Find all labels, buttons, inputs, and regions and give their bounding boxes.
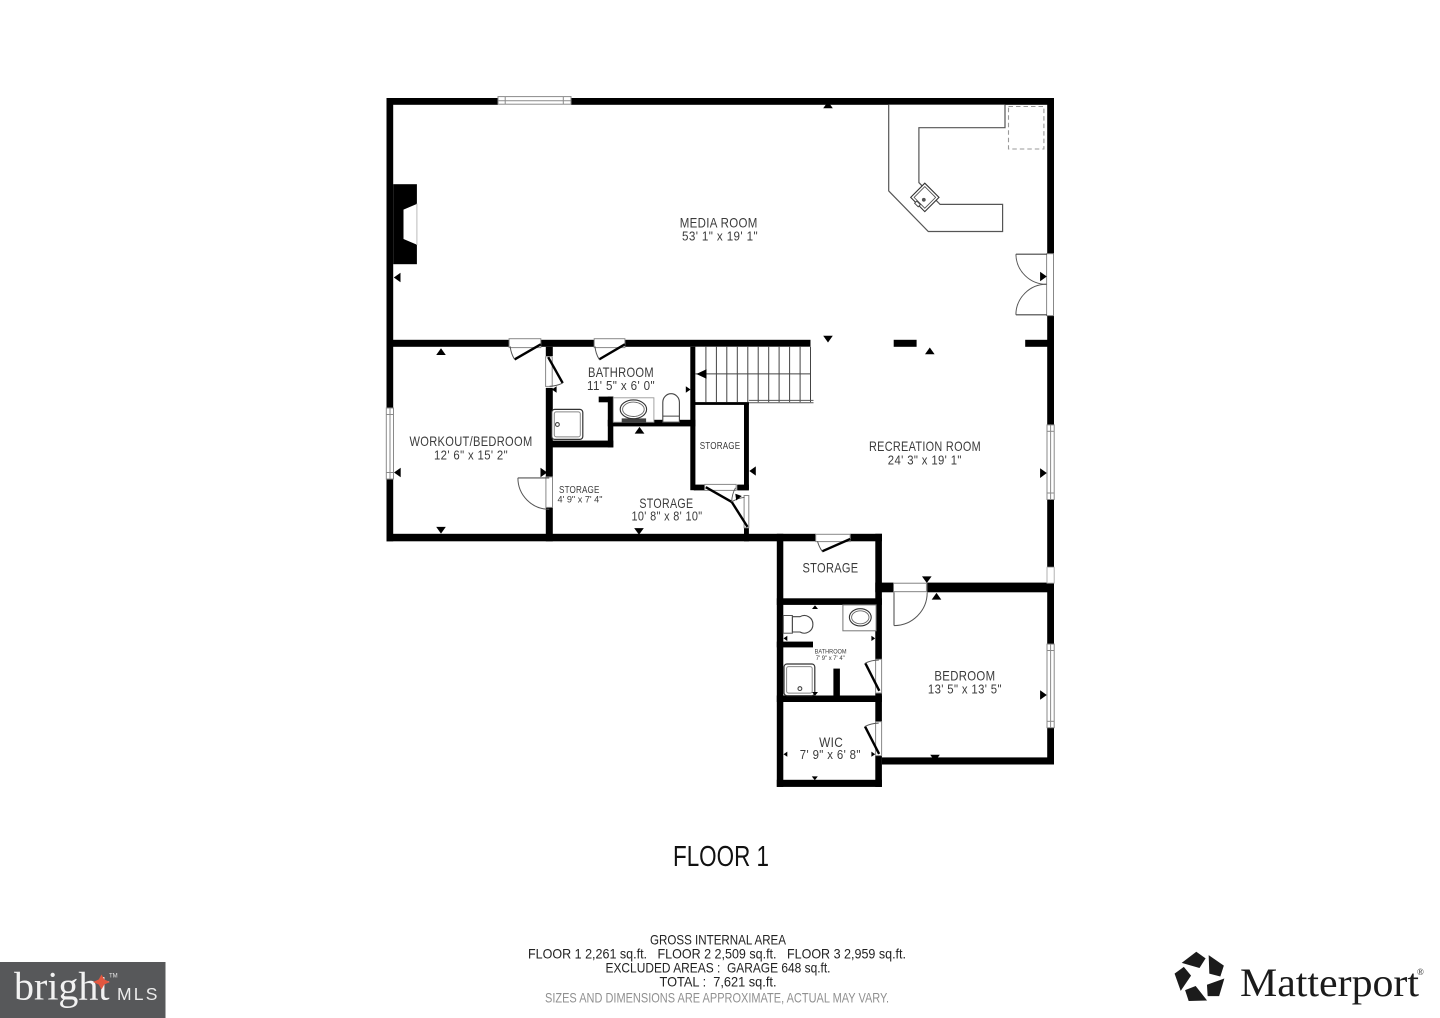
svg-text:bright: bright xyxy=(14,964,110,1009)
svg-text:MEDIA ROOM: MEDIA ROOM xyxy=(680,214,758,230)
svg-text:RECREATION ROOM: RECREATION ROOM xyxy=(869,438,981,454)
svg-text:®: ® xyxy=(1417,967,1424,977)
svg-text:GROSS INTERNAL AREA: GROSS INTERNAL AREA xyxy=(650,933,787,948)
svg-text:12' 6" x 15' 2": 12' 6" x 15' 2" xyxy=(434,448,508,462)
svg-text:13' 5" x 13' 5": 13' 5" x 13' 5" xyxy=(928,683,1002,697)
svg-text:SIZES AND DIMENSIONS ARE APPRO: SIZES AND DIMENSIONS ARE APPROXIMATE, AC… xyxy=(545,990,889,1006)
svg-text:STORAGE: STORAGE xyxy=(803,560,859,576)
svg-text:WORKOUT/BEDROOM: WORKOUT/BEDROOM xyxy=(410,433,533,449)
svg-text:BATHROOM: BATHROOM xyxy=(588,364,654,380)
svg-text:FLOOR 1 2,261 sq.ft. FLOOR 2: FLOOR 1 2,261 sq.ft. FLOOR 2 2,509 sq.ft… xyxy=(528,947,906,962)
svg-text:TOTAL : 7,621 sq.ft.: TOTAL : 7,621 sq.ft. xyxy=(660,975,777,990)
svg-text:24' 3" x 19' 1": 24' 3" x 19' 1" xyxy=(888,454,962,468)
svg-text:10' 8" x 8' 10": 10' 8" x 8' 10" xyxy=(632,509,703,523)
svg-text:Matterport: Matterport xyxy=(1240,960,1419,1005)
svg-text:BATHROOM: BATHROOM xyxy=(815,649,847,656)
svg-text:4' 9" x 7' 4": 4' 9" x 7' 4" xyxy=(558,495,603,505)
svg-text:MLS: MLS xyxy=(117,984,160,1004)
svg-text:7' 9" x 7' 4": 7' 9" x 7' 4" xyxy=(816,656,845,662)
svg-text:BEDROOM: BEDROOM xyxy=(934,668,995,684)
svg-text:53' 1" x 19' 1": 53' 1" x 19' 1" xyxy=(682,229,758,243)
svg-text:EXCLUDED AREAS : GARAGE 648 s: EXCLUDED AREAS : GARAGE 648 sq.ft. xyxy=(606,961,831,976)
svg-text:STORAGE: STORAGE xyxy=(700,441,741,452)
svg-text:11' 5" x 6' 0": 11' 5" x 6' 0" xyxy=(587,379,655,393)
svg-text:TM: TM xyxy=(109,974,118,980)
svg-text:FLOOR 1: FLOOR 1 xyxy=(673,841,769,873)
svg-text:7' 9" x 6' 8": 7' 9" x 6' 8" xyxy=(800,748,861,762)
